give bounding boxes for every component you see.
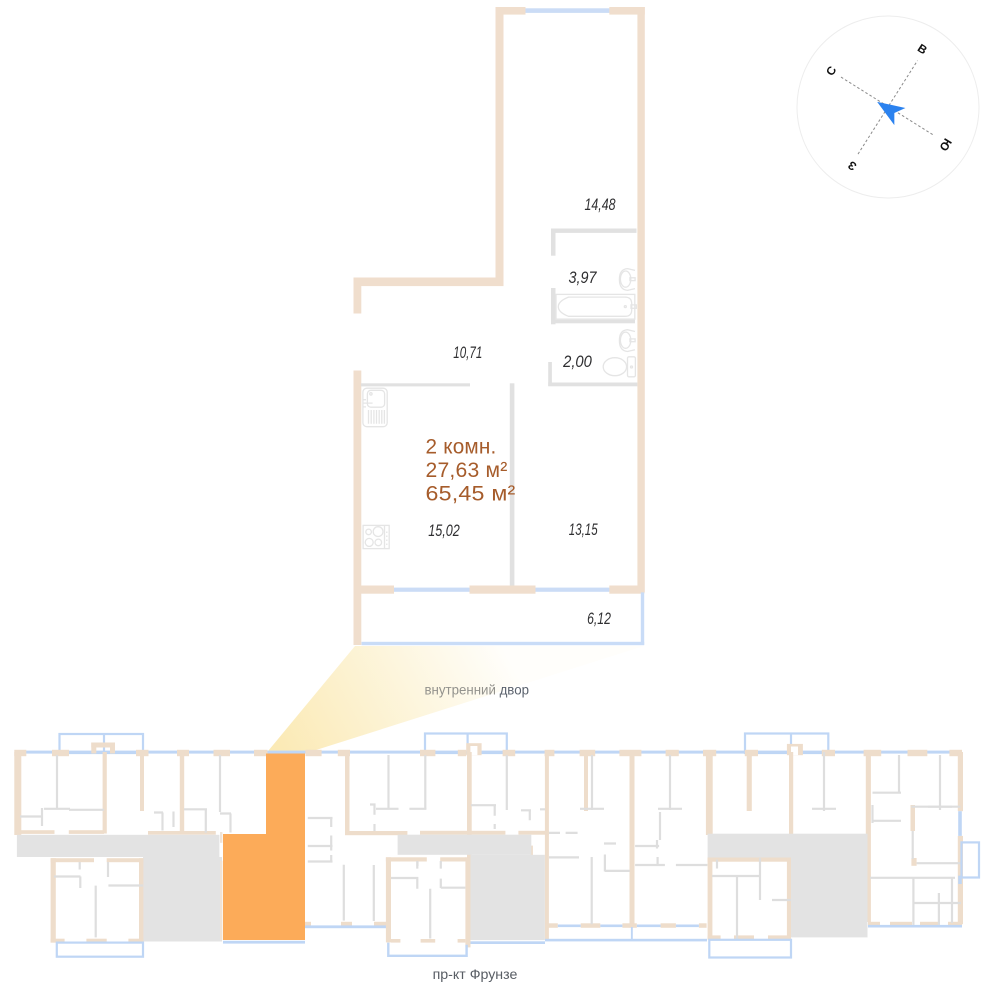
svg-text:14,48: 14,48	[585, 195, 616, 214]
svg-text:27,63 м²: 27,63 м²	[426, 458, 508, 482]
svg-text:65,45 м²: 65,45 м²	[426, 482, 516, 506]
svg-text:внутренний двор: внутренний двор	[425, 683, 530, 699]
svg-text:3,97: 3,97	[569, 268, 597, 287]
svg-text:2 комн.: 2 комн.	[426, 435, 497, 459]
svg-text:2,00: 2,00	[562, 352, 592, 371]
svg-text:13,15: 13,15	[569, 520, 598, 539]
svg-text:6,12: 6,12	[587, 609, 611, 628]
svg-text:10,71: 10,71	[453, 343, 482, 362]
svg-text:пр-кт Фрунзе: пр-кт Фрунзе	[433, 967, 518, 983]
svg-text:15,02: 15,02	[428, 521, 460, 540]
